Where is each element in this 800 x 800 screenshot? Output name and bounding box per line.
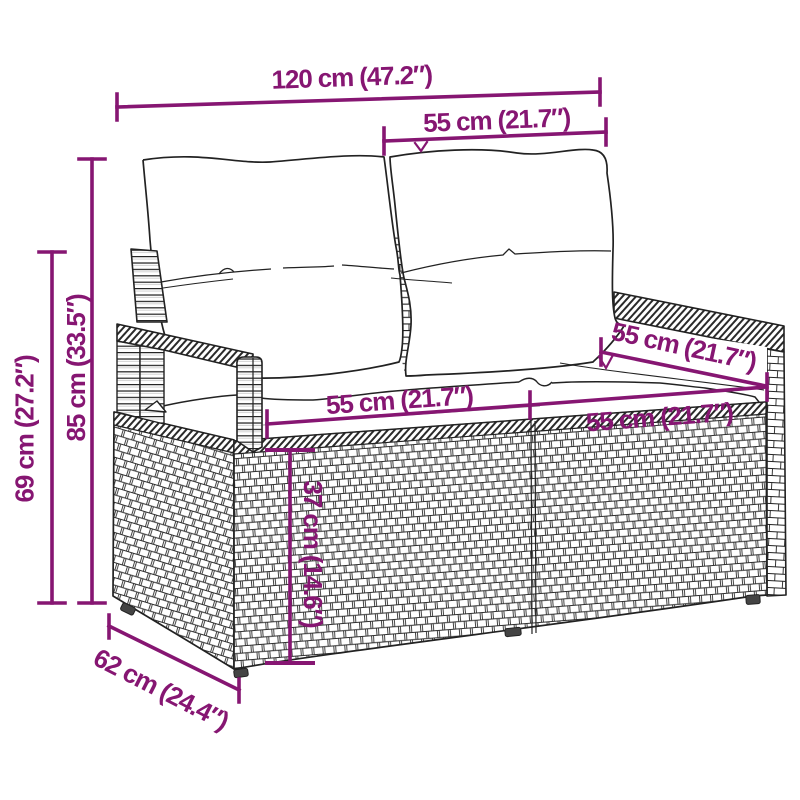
svg-text:55 cm (21.7″): 55 cm (21.7″) [423,102,572,138]
svg-text:85 cm (33.5″): 85 cm (33.5″) [61,294,91,441]
svg-text:120 cm (47.2″): 120 cm (47.2″) [271,59,433,95]
svg-text:69 cm (27.2″): 69 cm (27.2″) [10,355,40,502]
svg-text:37 cm (14.6″): 37 cm (14.6″) [298,480,328,627]
